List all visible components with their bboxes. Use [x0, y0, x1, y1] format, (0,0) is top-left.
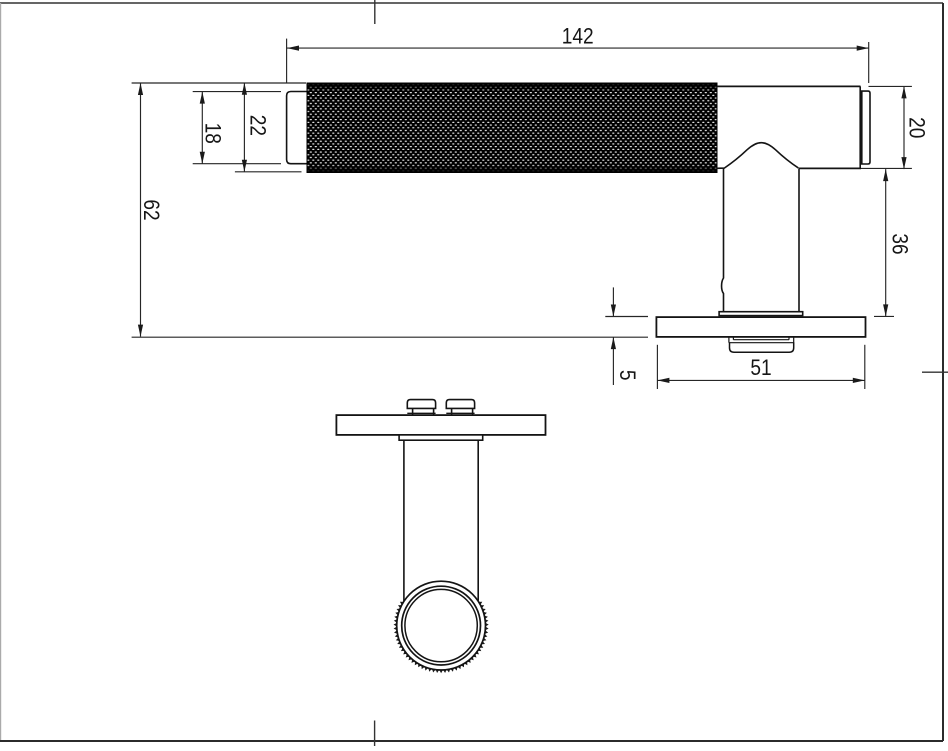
svg-text:5: 5	[615, 370, 640, 381]
svg-text:62: 62	[139, 199, 164, 220]
svg-text:22: 22	[245, 115, 270, 136]
svg-text:20: 20	[904, 117, 929, 138]
svg-text:36: 36	[887, 233, 912, 254]
svg-text:142: 142	[562, 24, 594, 49]
svg-text:51: 51	[750, 356, 771, 381]
svg-text:18: 18	[200, 123, 225, 144]
